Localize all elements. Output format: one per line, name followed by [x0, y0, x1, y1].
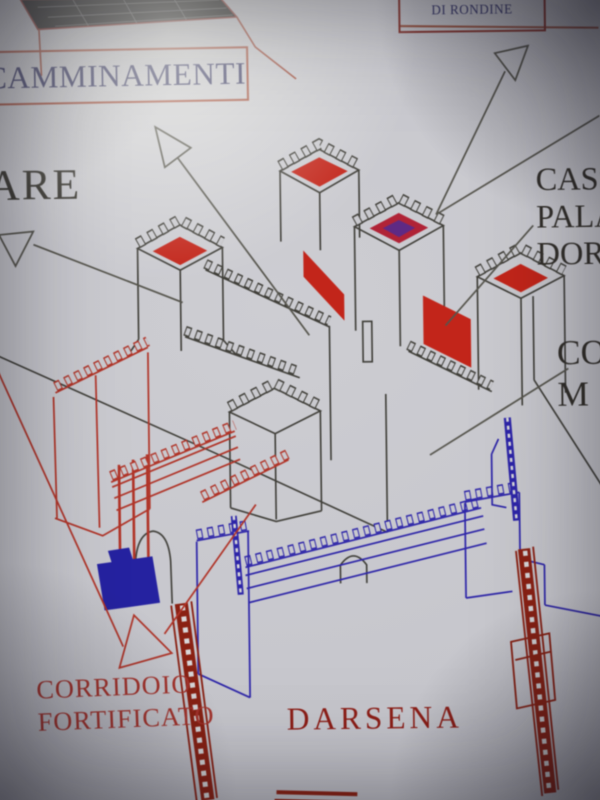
merlon-arrow-icon: [495, 46, 529, 81]
corner-tower-arrow-icon: [0, 232, 34, 267]
fortified-corridor-drawing: [53, 340, 290, 571]
cortina-leader-line: [429, 368, 569, 455]
corner-tower-label-partial: ARE: [0, 160, 82, 211]
corridor-water: [97, 547, 160, 610]
mooring-posts: [171, 546, 559, 800]
dock-label: DARSENA: [287, 699, 464, 738]
cortina-label-line2: M: [557, 373, 600, 415]
cassero-label-line1: CASS: [535, 160, 600, 198]
red-leader-lines: [0, 365, 258, 669]
cortina-label-partial: CO M: [557, 332, 600, 415]
corridor-arrow-icon: [119, 615, 172, 668]
cassero-label-line2: PALA: [536, 197, 600, 235]
fortified-corridor-label: CORRIDOIO FORTIFICATO: [36, 667, 215, 739]
diagram-content: MERLO A CODA DI RONDINE CAMMINAMENTI ARE…: [0, 0, 600, 800]
corridor-leader-line-left: [0, 367, 123, 648]
walkways-label: CAMMINAMENTI: [0, 55, 246, 95]
walkways-arrow-icon: [155, 127, 191, 168]
cortina-label-line1: CO: [557, 332, 600, 374]
cassero-label-line3: DOR: [536, 235, 600, 273]
walkways-label-box: CAMMINAMENTI: [0, 46, 249, 106]
merlon-label-box: MERLO A CODA DI RONDINE: [398, 0, 546, 33]
merlon-label-line2: DI RONDINE: [400, 1, 544, 19]
cassero-label-partial: CASS PALA DOR: [535, 160, 600, 273]
castle-diagram-photo: MERLO A CODA DI RONDINE CAMMINAMENTI ARE…: [0, 0, 600, 800]
